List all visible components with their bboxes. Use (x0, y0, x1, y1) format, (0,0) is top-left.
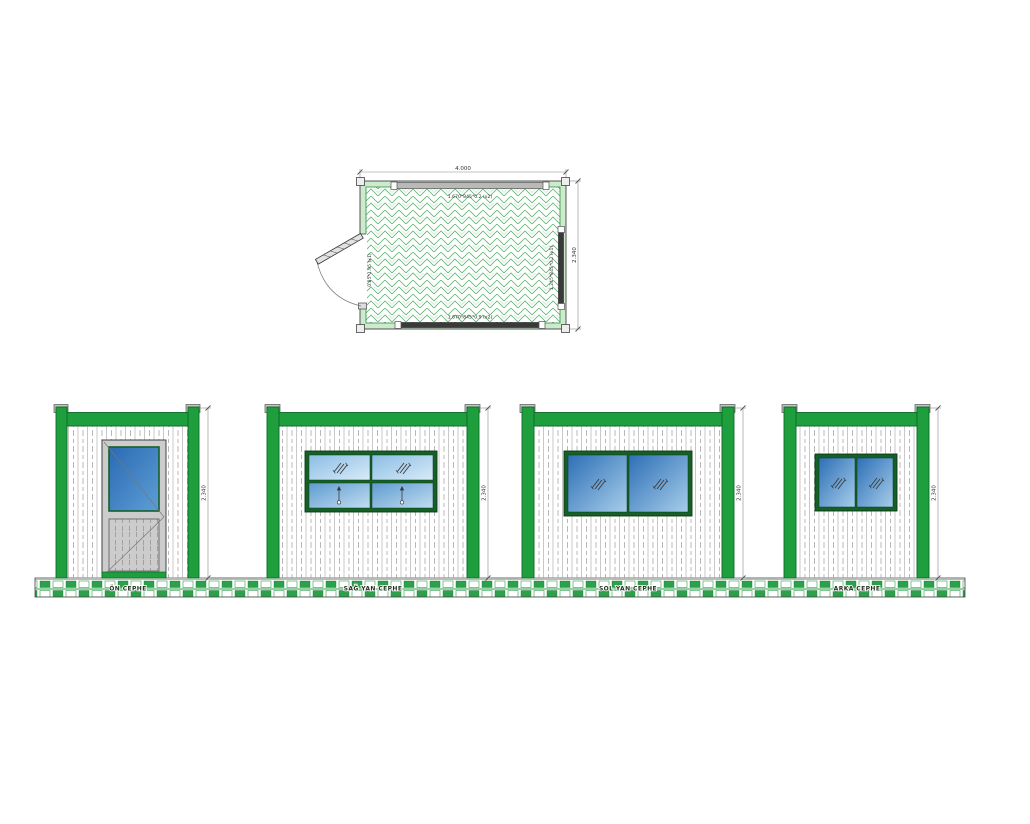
plan-door-swing-arc (317, 262, 361, 306)
corner-post-right (917, 407, 929, 578)
elevation-back: 2.340 ARKA CEPHE (782, 405, 941, 593)
ground-label-back: ARKA CEPHE (834, 586, 881, 593)
plan-width-dim-text: 4.000 (455, 166, 471, 172)
elevation-left-window (564, 451, 692, 516)
top-beam (279, 413, 467, 427)
ground-label-right-side: SAĞ YAN CEPHE (344, 586, 403, 593)
elevation-front-door (102, 440, 166, 578)
plan-corner-plate (357, 325, 365, 333)
plan-door: 0.85*1.95 (x1) (315, 233, 373, 309)
ground-label-front: ÖN CEPHE (109, 586, 146, 593)
elevation-right-height-dim: 2.340 (482, 485, 488, 501)
plan-dimension-width: 4.000 (358, 166, 569, 181)
corner-post-left (522, 407, 534, 578)
corner-post-left (784, 407, 796, 578)
window-pane (629, 455, 688, 512)
plan-corner-plate (357, 178, 365, 186)
window-pane (857, 458, 893, 507)
top-beam (534, 413, 722, 427)
elevation-back-window (815, 454, 897, 511)
elevation-back-dimension: 2.340 (929, 406, 941, 581)
cad-canvas: 4.000 2.340 1.670*845*0.2 (x2) (0, 0, 1030, 824)
plan-door-leaf (315, 233, 363, 264)
plan-window-bottom-label: 1.670*845*0.9 (x2) (448, 315, 493, 321)
top-beam (796, 413, 917, 427)
plan-window-top-label: 1.670*845*0.2 (x2) (448, 194, 493, 200)
window-pane (372, 455, 433, 480)
plan-door-label: 0.85*1.95 (x1) (367, 253, 373, 287)
plan-height-dim-text: 2.340 (572, 247, 578, 263)
plan-dimension-height: 2.340 (566, 179, 581, 332)
plan-floor-hatch (366, 187, 560, 323)
door-threshold (102, 572, 166, 578)
elevation-front-dimension: 2.340 (199, 406, 211, 581)
plan-corner-plate (562, 325, 570, 333)
elevation-back-height-dim: 2.340 (932, 485, 938, 501)
corner-post-right (722, 407, 734, 578)
elevation-left-side: 2.340 SOL YAN CEPHE (520, 405, 746, 593)
plan-window-right-label: 1.245*845*0.2 (x1) (549, 246, 555, 291)
elevation-left-dimension: 2.340 (734, 406, 746, 581)
plan-corner-plate (562, 178, 570, 186)
corner-post-right (188, 407, 199, 578)
window-pane (309, 455, 370, 480)
corner-post-left (56, 407, 67, 578)
elevation-right-dimension: 2.340 (479, 406, 491, 581)
elevation-front-height-dim: 2.340 (202, 485, 208, 501)
window-pane (568, 455, 627, 512)
corner-post-left (267, 407, 279, 578)
ground-label-left-side: SOL YAN CEPHE (599, 586, 657, 593)
window-pane (819, 458, 855, 507)
elevation-right-window (305, 451, 437, 512)
elevation-left-height-dim: 2.340 (737, 485, 743, 501)
elevation-front: 2.340 ÖN CEPHE (54, 405, 211, 593)
elevation-right-side: 2.340 SAĞ YAN CEPHE (265, 405, 491, 593)
floor-plan: 4.000 2.340 1.670*845*0.2 (x2) (315, 166, 581, 333)
ground-strip (35, 578, 965, 597)
top-beam (67, 413, 188, 427)
corner-post-right (467, 407, 479, 578)
